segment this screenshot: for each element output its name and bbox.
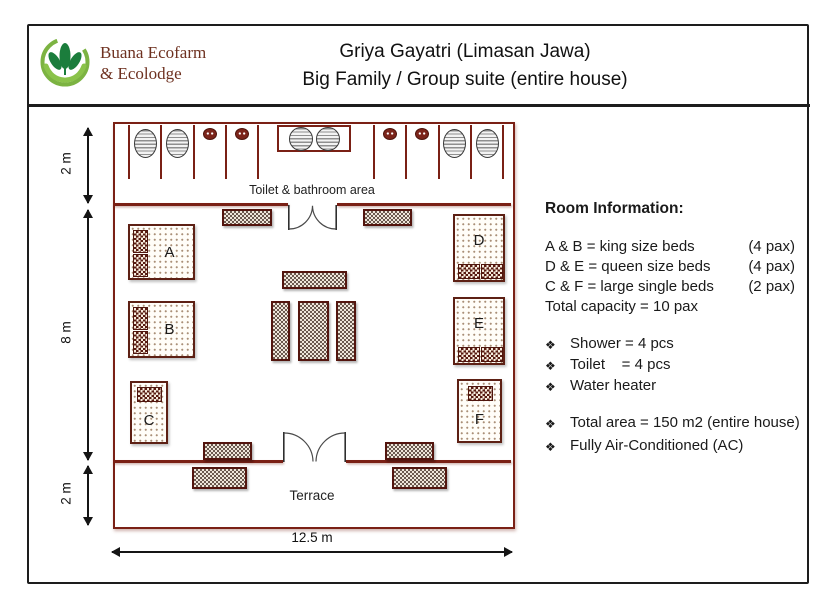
dimension-arrow-terrace-depth xyxy=(87,466,89,525)
bed-info-line: D & E = queen size beds (4 pax) xyxy=(545,257,795,277)
table xyxy=(282,271,347,289)
bench xyxy=(363,209,412,226)
wall-toilet-room-left xyxy=(113,203,288,206)
bed-a: A xyxy=(128,224,195,280)
washbasin-counter xyxy=(277,125,351,152)
bullet-icon: ❖ xyxy=(545,376,570,397)
brand-name-line2: & Ecolodge xyxy=(100,63,206,84)
bench xyxy=(271,301,290,361)
stall-partition xyxy=(405,125,407,179)
double-door-top-icon xyxy=(288,205,337,233)
dimension-arrow-total-width xyxy=(112,551,512,553)
bed-c: C xyxy=(130,381,168,444)
pillow-icon xyxy=(133,230,148,253)
pillow-icon xyxy=(133,254,148,277)
terrace-bench xyxy=(192,467,247,489)
leaf-hands-logo-icon xyxy=(38,35,92,89)
terrace-label: Terrace xyxy=(113,488,511,503)
extra-item: ❖ Fully Air-Conditioned (AC) xyxy=(545,435,813,458)
room-information-panel: Room Information: A & B = king size beds… xyxy=(545,200,813,458)
stall-partition xyxy=(193,125,195,179)
bed-f: F xyxy=(457,379,502,443)
bed-info-text: D & E = queen size beds xyxy=(545,257,711,277)
pillow-icon xyxy=(481,264,503,279)
bed-label-f: F xyxy=(475,411,484,428)
bed-label-b: B xyxy=(164,321,174,338)
facilities-list: ❖ Shower = 4 pcs ❖ Toilet = 4 pcs ❖ Wate… xyxy=(545,334,813,397)
table xyxy=(298,301,329,361)
bed-info-text: C & F = large single beds xyxy=(545,277,714,297)
bed-label-d: D xyxy=(474,232,485,249)
washbasin-icon xyxy=(316,127,340,151)
stall-partition xyxy=(160,125,162,179)
bed-b: B xyxy=(128,301,195,358)
stall-partition xyxy=(470,125,472,179)
bench xyxy=(336,301,356,361)
wall-room-terrace-right xyxy=(346,460,511,463)
brand-name-line1: Buana Ecofarm xyxy=(100,42,206,63)
wall-toilet-room-right xyxy=(337,203,511,206)
bullet-icon: ❖ xyxy=(545,355,570,376)
room-info-heading: Room Information: xyxy=(545,200,813,218)
extra-text: Total area = 150 m2 (entire house) xyxy=(570,412,800,435)
facility-item: ❖ Shower = 4 pcs xyxy=(545,334,813,355)
facility-text: Shower = 4 pcs xyxy=(570,334,674,355)
shower-icon xyxy=(476,129,499,158)
toilet-icon xyxy=(235,128,249,140)
bed-label-e: E xyxy=(474,315,484,332)
extra-text: Fully Air-Conditioned (AC) xyxy=(570,435,743,458)
washbasin-icon xyxy=(289,127,313,151)
pillow-icon xyxy=(133,331,148,354)
stall-partition xyxy=(225,125,227,179)
stall-partition xyxy=(373,125,375,179)
toilet-icon xyxy=(203,128,217,140)
pillow-icon xyxy=(137,387,162,402)
total-capacity-line: Total capacity = 10 pax xyxy=(545,297,813,317)
dimension-arrow-toilet-depth xyxy=(87,128,89,203)
bed-info-line: C & F = large single beds (2 pax) xyxy=(545,277,795,297)
bench xyxy=(222,209,272,226)
dimension-arrow-room-depth xyxy=(87,210,89,460)
pillow-icon xyxy=(133,307,148,330)
wall-room-terrace-left xyxy=(113,460,283,463)
bench xyxy=(203,442,252,460)
double-door-bottom-icon xyxy=(283,430,346,462)
extra-item: ❖ Total area = 150 m2 (entire house) xyxy=(545,412,813,435)
pillow-icon xyxy=(458,264,480,279)
pillow-icon xyxy=(481,347,503,362)
stall-partition xyxy=(128,125,130,179)
facility-text: Water heater xyxy=(570,376,656,397)
dim-label-total-width: 12.5 m xyxy=(262,530,362,545)
bed-label-c: C xyxy=(144,412,155,429)
bed-d: D xyxy=(453,214,505,282)
facility-item: ❖ Toilet = 4 pcs xyxy=(545,355,813,376)
bed-e: E xyxy=(453,297,505,365)
brand-logo-icon xyxy=(38,35,92,89)
dim-label-toilet-depth: 2 m xyxy=(59,145,74,183)
bench xyxy=(385,442,434,460)
bed-info-pax: (4 pax) xyxy=(748,257,795,277)
stall-partition xyxy=(257,125,259,179)
shower-icon xyxy=(166,129,189,158)
bed-info-pax: (4 pax) xyxy=(748,237,795,257)
page-title-line2: Big Family / Group suite (entire house) xyxy=(300,66,630,94)
dim-label-room-depth: 8 m xyxy=(59,314,74,352)
bed-label-a: A xyxy=(164,244,174,261)
header-divider xyxy=(27,104,810,107)
dim-label-terrace-depth: 2 m xyxy=(59,475,74,513)
facility-text: Toilet = 4 pcs xyxy=(570,355,670,376)
page-title-line1: Griya Gayatri (Limasan Jawa) xyxy=(300,38,630,66)
toilet-icon xyxy=(383,128,397,140)
bed-info-text: A & B = king size beds xyxy=(545,237,695,257)
toilet-icon xyxy=(415,128,429,140)
stall-partition xyxy=(502,125,504,179)
bullet-icon: ❖ xyxy=(545,435,570,458)
bed-info-pax: (2 pax) xyxy=(748,277,795,297)
extras-list: ❖ Total area = 150 m2 (entire house) ❖ F… xyxy=(545,412,813,458)
pillow-icon xyxy=(458,347,480,362)
bed-info-line: A & B = king size beds (4 pax) xyxy=(545,237,795,257)
facility-item: ❖ Water heater xyxy=(545,376,813,397)
toilet-area-label: Toilet & bathroom area xyxy=(113,183,511,197)
stall-partition xyxy=(438,125,440,179)
pillow-icon xyxy=(468,386,493,401)
page-title: Griya Gayatri (Limasan Jawa) Big Family … xyxy=(300,38,630,93)
brand-name: Buana Ecofarm & Ecolodge xyxy=(100,42,206,84)
floor-plan-page: Buana Ecofarm & Ecolodge Griya Gayatri (… xyxy=(0,0,835,613)
bullet-icon: ❖ xyxy=(545,412,570,435)
terrace-bench xyxy=(392,467,447,489)
shower-icon xyxy=(134,129,157,158)
bullet-icon: ❖ xyxy=(545,334,570,355)
shower-icon xyxy=(443,129,466,158)
